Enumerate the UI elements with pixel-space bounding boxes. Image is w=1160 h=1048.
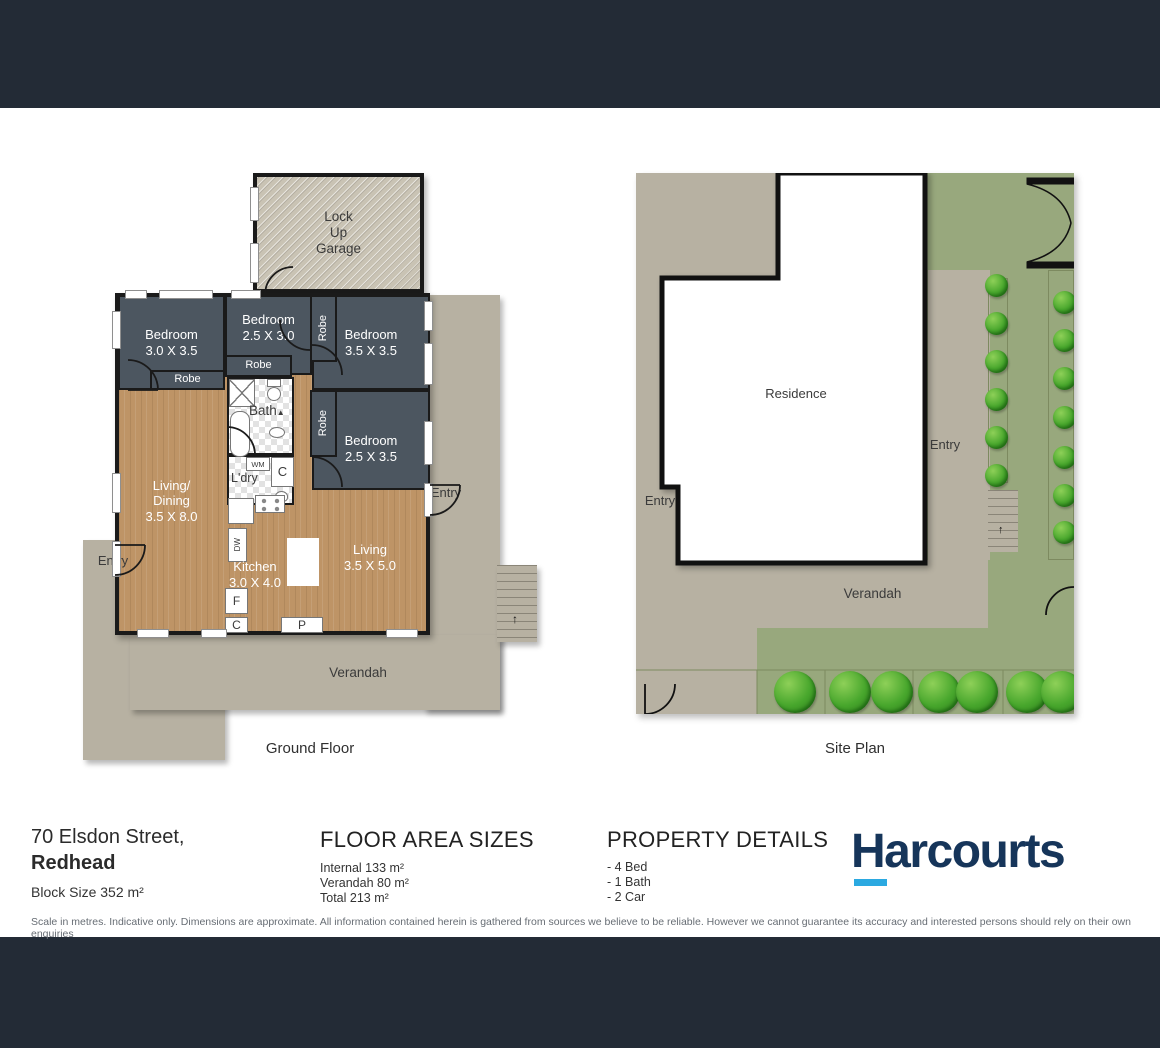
garage-window bbox=[250, 187, 259, 221]
window bbox=[231, 290, 261, 299]
window bbox=[424, 301, 433, 331]
robe-bedroom1: Robe bbox=[150, 370, 225, 390]
garage-label: Lock Up Garage bbox=[316, 209, 361, 258]
tree-icon bbox=[985, 388, 1008, 411]
property-details-title: PROPERTY DETAILS bbox=[607, 827, 828, 853]
tree-icon bbox=[985, 312, 1008, 335]
tree-icon bbox=[985, 426, 1008, 449]
tree-icon bbox=[1053, 406, 1075, 429]
property-details-item: - 2 Car bbox=[607, 890, 828, 905]
tree-icon bbox=[1053, 329, 1075, 352]
kitchen-label: Kitchen3.0 X 4.0 bbox=[205, 558, 305, 592]
property-details-item: - 1 Bath bbox=[607, 875, 828, 890]
tree-icon bbox=[918, 671, 960, 713]
tree-icon bbox=[985, 350, 1008, 373]
window bbox=[112, 473, 121, 513]
toilet-bowl bbox=[267, 387, 281, 401]
disclaimer: Scale in metres. Indicative only. Dimens… bbox=[31, 916, 1136, 940]
stairs-up-arrow: ↑ bbox=[512, 613, 518, 625]
site-linework bbox=[636, 173, 1074, 714]
ground-floor-plan: ↑ Lock Up Garage Bedroom3.0 X 3.5 Bedroo… bbox=[83, 173, 537, 765]
pantry-label: P bbox=[298, 618, 306, 632]
floorplan-stairs bbox=[497, 565, 537, 642]
cupboard-label: C bbox=[278, 464, 287, 480]
window bbox=[112, 311, 121, 349]
floor-area-item: Verandah 80 m² bbox=[320, 876, 534, 891]
tree-icon bbox=[956, 671, 998, 713]
property-details-item: - 4 Bed bbox=[607, 860, 828, 875]
bottom-bar bbox=[0, 937, 1160, 1048]
floor-area-item: Total 213 m² bbox=[320, 891, 534, 906]
tree-icon bbox=[985, 274, 1008, 297]
bath-label: Bath▲ bbox=[249, 403, 285, 419]
laundry-cupboard: C bbox=[271, 457, 294, 487]
tree-icon bbox=[1053, 367, 1075, 390]
cupboard-label: C bbox=[232, 618, 241, 632]
harcourts-wordmark: Harcourts bbox=[851, 828, 1064, 876]
fridge-label: F bbox=[233, 594, 240, 608]
window bbox=[424, 421, 433, 465]
tree-icon bbox=[1053, 521, 1075, 544]
address-line2: Redhead bbox=[31, 852, 184, 875]
window bbox=[201, 629, 227, 638]
address-line1: 70 Elsdon Street, bbox=[31, 826, 184, 849]
laundry-label: L'dry bbox=[231, 471, 258, 486]
verandah-label: Verandah bbox=[308, 665, 408, 681]
floor-area-title: FLOOR AREA SIZES bbox=[320, 827, 534, 853]
site-entry-left-label: Entry bbox=[638, 493, 682, 509]
door-arrow-icon: ▲ bbox=[277, 408, 285, 417]
robe-bedroom4: Robe bbox=[310, 390, 337, 457]
kitchen-bench bbox=[228, 498, 254, 524]
washing-machine: WM bbox=[246, 457, 270, 471]
tree-icon bbox=[829, 671, 871, 713]
site-plan-caption: Site Plan bbox=[636, 740, 1074, 757]
robe-label: Robe bbox=[317, 315, 330, 341]
living-label: Living3.5 X 5.0 bbox=[320, 541, 420, 575]
robe-bedroom2: Robe bbox=[225, 355, 292, 377]
harcourts-logo: Harcourts bbox=[851, 828, 1064, 886]
entry-door-gap bbox=[424, 483, 433, 517]
tree-icon bbox=[774, 671, 816, 713]
window bbox=[424, 343, 433, 385]
pantry: P bbox=[281, 617, 323, 633]
tree-icon bbox=[871, 671, 913, 713]
window bbox=[386, 629, 418, 638]
kitchen-cupboard: C bbox=[225, 617, 248, 633]
tree-icon bbox=[1053, 484, 1075, 507]
robe-bedroom3: Robe bbox=[310, 295, 337, 362]
front-door-gap bbox=[112, 541, 121, 577]
dw-label: DW bbox=[233, 538, 243, 551]
robe-label: Robe bbox=[245, 359, 271, 372]
bathtub bbox=[230, 411, 250, 457]
address-block: 70 Elsdon Street, Redhead Block Size 352… bbox=[31, 826, 184, 900]
toilet-tank bbox=[267, 379, 281, 387]
tree-icon bbox=[1053, 291, 1075, 314]
robe-label: Robe bbox=[174, 373, 200, 386]
site-entry-right-label: Entry bbox=[914, 437, 976, 453]
window bbox=[159, 290, 213, 299]
site-plan: Verandah ↑ Residence Entry Entry bbox=[636, 173, 1074, 714]
tree-icon bbox=[985, 464, 1008, 487]
tree-icon bbox=[1053, 446, 1075, 469]
window bbox=[137, 629, 169, 638]
block-size: Block Size 352 m² bbox=[31, 884, 184, 900]
property-details-block: PROPERTY DETAILS - 4 Bed - 1 Bath - 2 Ca… bbox=[607, 827, 828, 905]
top-bar bbox=[0, 0, 1160, 108]
residence-outline bbox=[662, 173, 925, 563]
floor-area-block: FLOOR AREA SIZES Internal 133 m² Veranda… bbox=[320, 827, 534, 906]
dishwasher: DW bbox=[228, 528, 247, 562]
window bbox=[125, 290, 147, 299]
residence-label: Residence bbox=[746, 384, 846, 404]
robe-label: Robe bbox=[317, 410, 330, 436]
living-dining-label: Living/Dining3.5 X 8.0 bbox=[118, 468, 225, 534]
garage-door-gap bbox=[250, 243, 259, 283]
cooktop bbox=[255, 495, 285, 513]
garage: Lock Up Garage bbox=[253, 173, 424, 293]
wm-label: WM bbox=[251, 460, 264, 469]
harcourts-underline bbox=[854, 879, 887, 886]
basin bbox=[269, 427, 285, 438]
floor-area-item: Internal 133 m² bbox=[320, 861, 534, 876]
